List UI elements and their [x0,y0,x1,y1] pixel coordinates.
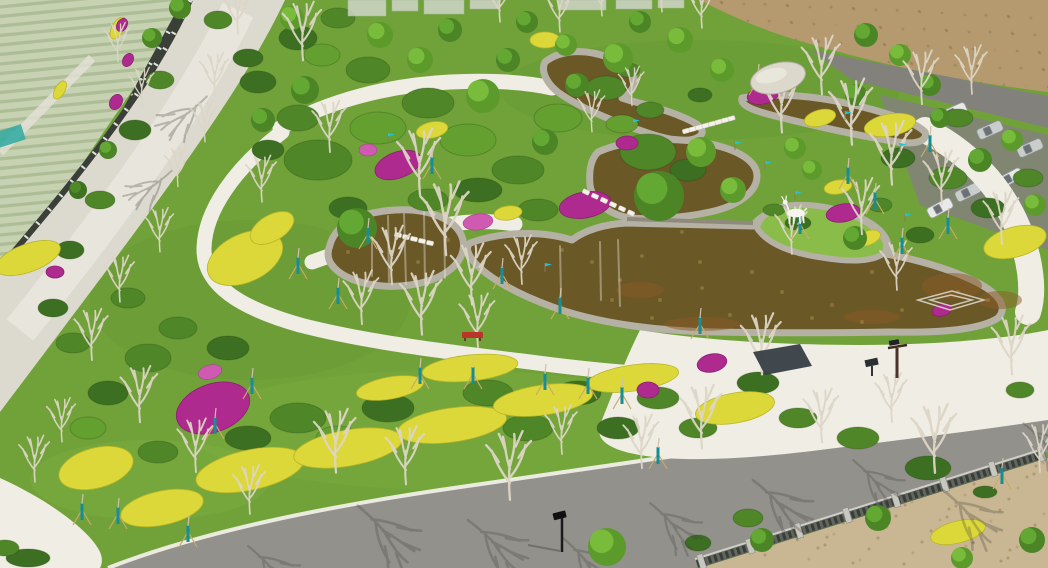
dirt-speckle [812,22,815,25]
canopy-tree [603,43,633,73]
dirt-speckle [1007,557,1010,560]
canopy-tree [142,28,162,48]
shrub-mound [906,227,934,243]
dirt-speckle [945,29,948,32]
dirt-speckle [839,41,842,44]
algae-dot [900,308,904,312]
shrub-mound [138,441,178,463]
dirt-speckle [1029,16,1032,19]
rust-patch [664,317,740,331]
shrub-mound [518,199,558,221]
dirt-speckle [1020,67,1023,70]
canopy-tree [555,34,577,56]
dirt-speckle [768,20,771,23]
tree-crown-highlight [497,49,512,64]
shrub-mound [492,156,544,184]
dirt-speckle [954,64,957,67]
tree-crown-highlight [721,178,737,194]
dirt-speckle [879,26,882,29]
tree-crown-highlight [751,529,766,544]
magenta-flowerbed [616,136,638,150]
canopy-tree [367,22,393,48]
dirt-speckle [1025,85,1028,88]
shrub-mound [503,415,553,441]
tree-crown-highlight [969,149,984,164]
dirt-speckle [939,519,942,522]
magenta-flowerbed [637,382,659,398]
dirt-speckle [817,547,820,550]
shrub-mound [204,11,232,29]
shrub-mound [1013,169,1043,187]
algae-dot [698,260,702,264]
algae-dot [680,230,684,234]
dirt-speckle [1042,462,1045,465]
dirt-speckle [883,43,886,46]
shrub-mound [346,57,390,83]
dirt-speckle [868,548,871,551]
shrub-mound [119,120,151,140]
algae-dot [590,260,594,264]
dirt-speckle [1002,83,1005,86]
shrub-mound [837,427,879,449]
algae-dot [700,286,704,290]
tree-crown-highlight [143,29,155,41]
tree-crown-highlight [637,173,668,204]
canopy-tree [291,76,319,104]
shrub-mound [85,191,115,209]
tree-crown-highlight [533,130,549,146]
algae-dot [728,313,732,317]
shrub-mound [284,140,352,180]
dirt-speckle [720,1,723,4]
dirt-speckle [910,62,913,65]
algae-dot [658,298,662,302]
dirt-speckle [990,520,993,523]
shrub-mound [597,417,639,439]
tree-reflection [424,212,425,283]
dirt-speckle [835,24,838,27]
tree-crown-highlight [630,12,644,26]
canopy-tree [496,48,520,72]
shrub-mound [733,509,763,527]
pink-flowerbed [359,144,377,156]
dirt-speckle [830,6,833,9]
canopy-tree [407,47,433,73]
shrub-mound [207,336,249,360]
dirt-speckle [1016,546,1019,549]
dirt-speckle [903,563,906,566]
tree-crown-highlight [952,548,966,562]
canopy-tree [69,181,87,199]
canopy-tree [865,505,891,531]
shrub-mound [402,88,454,118]
shrub-mound [440,124,496,156]
dirt-speckle [852,7,855,10]
dirt-speckle [786,4,789,7]
tree-crown-highlight [688,138,707,157]
dirt-speckle [808,5,811,8]
shrub-mound [225,426,271,450]
canopy-tree [667,27,693,53]
canopy-tree [629,11,651,33]
dirt-speckle [764,3,767,6]
dirt-speckle [1017,487,1020,490]
dirt-speckle [965,545,968,548]
dirt-speckle [989,31,992,34]
dirt-speckle [1026,476,1029,479]
shrub-mound [277,105,319,131]
building-roof [616,0,652,9]
shrub-mound [240,71,276,93]
dirt-speckle [746,19,749,22]
algae-dot [446,238,450,242]
shrub-mound [38,299,68,317]
dirt-speckle [1009,549,1012,552]
tree-crown-highlight [855,24,870,39]
dirt-speckle [874,8,877,11]
dirt-speckle [963,13,966,16]
dirt-speckle [808,558,811,561]
dirt-speckle [967,30,970,33]
dirt-speckle [904,504,907,507]
dirt-speckle [949,46,952,49]
algae-dot [610,298,614,302]
dirt-speckle [1033,33,1036,36]
dirt-speckle [1038,51,1041,54]
algae-dot [416,260,420,264]
canopy-tree [1024,194,1046,216]
shrub-mound [586,76,626,100]
canopy-tree [750,528,774,552]
dirt-speckle [994,49,997,52]
algae-dot [780,290,784,294]
dirt-speckle [896,9,899,12]
dirt-speckle [946,516,949,519]
magenta-flowerbed [46,266,64,278]
canopy-tree [686,137,716,167]
dirt-speckle [930,530,933,533]
canopy-tree [532,129,558,155]
building-roof [392,0,418,11]
tree-crown-highlight [1020,528,1036,544]
tree-crown-highlight [1002,130,1016,144]
tree-crown-highlight [785,138,799,152]
tree-crown-highlight [408,48,424,64]
dirt-speckle [927,45,930,48]
algae-dot [346,250,350,254]
algae-dot [650,316,654,320]
canopy-tree [99,141,117,159]
canopy-tree [1001,129,1023,151]
dirt-speckle [923,28,926,31]
tree-crown-highlight [292,77,309,94]
canopy-tree [438,18,462,42]
dirt-speckle [895,515,898,518]
tree-crown-highlight [866,506,882,522]
dirt-speckle [764,554,767,557]
tree-crown-highlight [566,74,581,89]
algae-dot [810,316,814,320]
dirt-speckle [1033,473,1036,476]
tree-crown-highlight [556,35,570,49]
dirt-speckle [972,48,975,51]
dirt-speckle [941,12,944,15]
dirt-speckle [985,14,988,17]
dirt-speckle [824,544,827,547]
dirt-speckle [918,10,921,13]
shrub-mound [763,204,785,216]
algae-dot [750,270,754,274]
dirt-speckle [1016,50,1019,53]
shrub-mound [111,288,145,308]
canopy-tree [516,11,538,33]
tree-crown-highlight [844,227,859,242]
dirt-speckle [964,494,967,497]
dirt-speckle [901,27,904,30]
shrub-mound [233,49,263,67]
tree-crown-highlight [711,59,726,74]
dirt-speckle [833,533,836,536]
dirt-speckle [912,552,915,555]
dirt-speckle [1008,498,1011,501]
dirt-speckle [955,505,958,508]
canopy-tree [1019,527,1045,553]
shrub-mound [159,317,197,339]
tree-crown-highlight [590,530,614,554]
shrub-mound [88,381,128,405]
algae-dot [860,320,864,324]
tree-crown-highlight [890,45,904,59]
shrub-mound [905,456,951,480]
shrub-mound [350,112,406,144]
canopy-tree [720,177,746,203]
tree-crown-highlight [1025,195,1039,209]
dirt-speckle [826,536,829,539]
shrub-mound [636,102,664,118]
shrub-mound [688,88,712,102]
dirt-speckle [1007,15,1010,18]
dirt-speckle [1035,465,1038,468]
canopy-tree [466,79,500,113]
dirt-speckle [1011,32,1014,35]
shrub-mound [70,417,106,439]
shrub-mound [1006,382,1034,398]
dirt-speckle [877,537,880,540]
tree-crown-highlight [368,23,384,39]
dirt-speckle [976,65,979,68]
canopy-tree [968,148,992,172]
tree-crown-highlight [70,182,81,193]
canopy-tree [634,171,684,221]
dirt-speckle [1043,513,1046,516]
canopy-tree [337,208,377,248]
rust-patch [844,310,900,324]
shrub-mound [534,104,582,132]
canopy-tree [854,23,878,47]
shrub-mound [125,344,171,372]
algae-dot [870,270,874,274]
canopy-tree [889,44,911,66]
tree-crown-highlight [803,161,815,173]
dirt-speckle [888,61,891,64]
dirt-speckle [1042,68,1045,71]
canopy-tree [251,108,275,132]
dirt-speckle [852,562,855,565]
tree-crown-highlight [252,109,267,124]
canopy-tree [930,108,950,128]
tree-crown-highlight [339,210,364,235]
dirt-speckle [973,483,976,486]
scene-svg [0,0,1048,568]
tree-crown-highlight [100,142,111,153]
dirt-speckle [998,66,1001,69]
tree-crown-highlight [668,28,684,44]
canopy-tree [802,160,822,180]
tree-crown-highlight [439,19,454,34]
shrub-mound [881,148,915,168]
aerial-park-photo [0,0,1048,568]
tree-crown-highlight [605,44,624,63]
dirt-speckle [790,21,793,24]
shrub-mound [252,140,284,160]
tree-crown-highlight [468,80,489,101]
canopy-tree [951,547,973,568]
rust-patch [616,282,664,298]
building-roof [348,0,386,16]
dirt-speckle [1000,560,1003,563]
dirt-speckle [742,2,745,5]
dirt-speckle [1034,524,1037,527]
shrub-mound [270,403,326,433]
dirt-speckle [921,541,924,544]
canopy-tree [784,137,806,159]
canopy-tree [710,58,734,82]
algae-dot [640,254,644,258]
canopy-tree [588,528,626,566]
algae-dot [830,303,834,307]
dirt-speckle [948,508,951,511]
tree-crown-highlight [517,12,531,26]
shrub-mound [737,372,779,394]
tree-reflection [600,242,601,300]
tree-crown-highlight [931,109,943,121]
canopy-tree [843,226,867,250]
building-roof [424,0,464,14]
dirt-speckle [859,559,862,562]
